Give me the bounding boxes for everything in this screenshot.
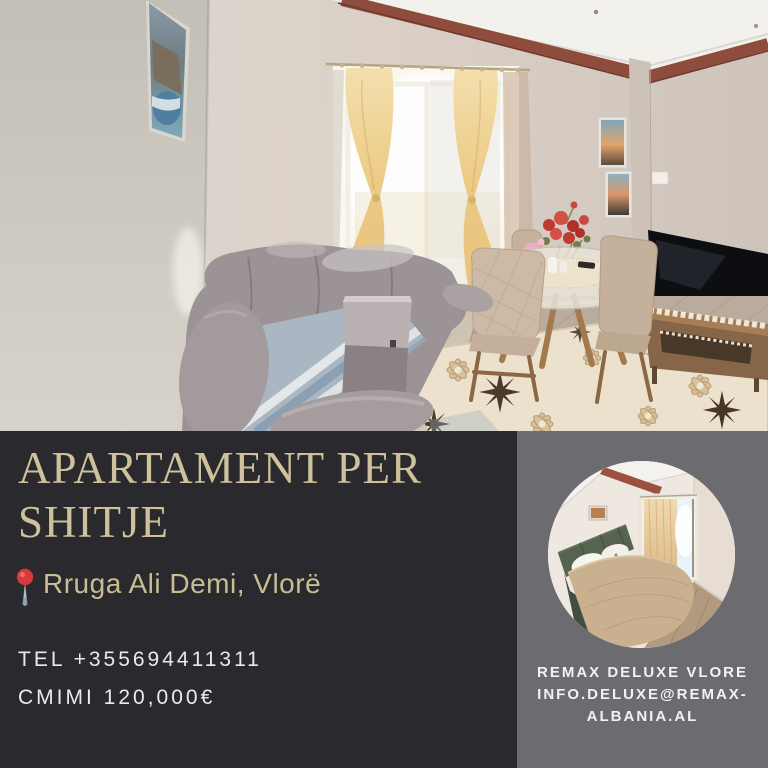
living-room-photo	[0, 0, 768, 432]
phone-text: TEL +355694411311	[18, 648, 262, 672]
agency-contact: REMAX DELUXE VLORE INFO.DELUXE@REMAX-ALB…	[517, 662, 768, 727]
price-text: CMIMI 120,000€	[18, 686, 215, 710]
bedroom-photo-circle	[548, 461, 735, 648]
location-text: Rruga Ali Demi, Vlorë	[43, 566, 321, 600]
location-pin-icon	[14, 568, 36, 610]
bedroom-photo	[548, 461, 735, 648]
location-row: Rruga Ali Demi, Vlorë	[14, 566, 321, 610]
poster-headline: APARTAMENT PER SHITJE	[18, 441, 498, 549]
agency-name: REMAX DELUXE VLORE	[537, 664, 748, 681]
real-estate-poster: APARTAMENT PER SHITJE Rruga Ali Demi, Vl…	[0, 0, 768, 768]
agency-email: INFO.DELUXE@REMAX-ALBANIA.AL	[528, 684, 758, 728]
